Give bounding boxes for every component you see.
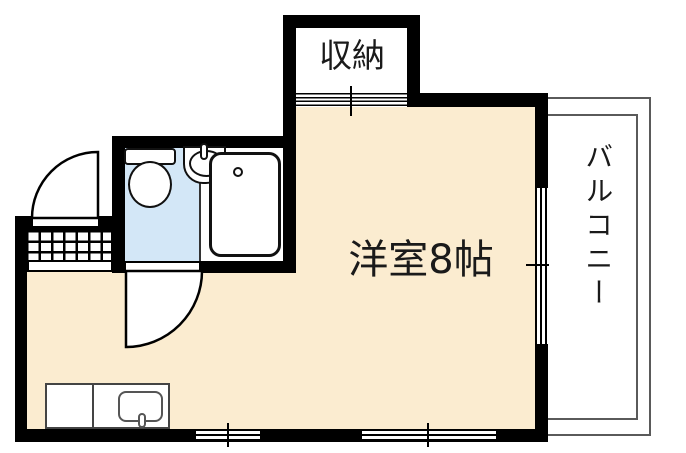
bathroom-door-swing bbox=[122, 267, 208, 353]
wall-right-lower bbox=[535, 344, 548, 442]
toilet-bowl bbox=[128, 161, 172, 208]
bathtub bbox=[209, 152, 281, 257]
main-room-label: 洋室8帖 bbox=[296, 237, 546, 283]
bottom-window-right-tick bbox=[427, 423, 429, 447]
closet-label: 収納 bbox=[290, 37, 414, 75]
kitchen-faucet bbox=[138, 413, 146, 428]
balcony-label: バルコニー bbox=[581, 142, 613, 362]
entrance-mat bbox=[24, 228, 113, 262]
entry-step-sill bbox=[27, 260, 113, 272]
closet-door-tick bbox=[350, 86, 352, 116]
bottom-window-right bbox=[362, 429, 496, 441]
bottom-window-left-tick bbox=[227, 423, 229, 447]
wall-bathroom-bottom bbox=[200, 261, 296, 273]
wall-right-upper bbox=[535, 93, 548, 188]
wall-closet-top bbox=[283, 15, 420, 28]
floor-plan: 収納 洋室8帖 バルコニー bbox=[0, 0, 686, 453]
wall-room-top bbox=[407, 93, 548, 107]
bathtub-drain bbox=[233, 167, 243, 177]
kitchen-counter-divider bbox=[92, 383, 94, 429]
wash-basin-faucet bbox=[200, 143, 208, 160]
entry-door-swing bbox=[28, 148, 102, 222]
